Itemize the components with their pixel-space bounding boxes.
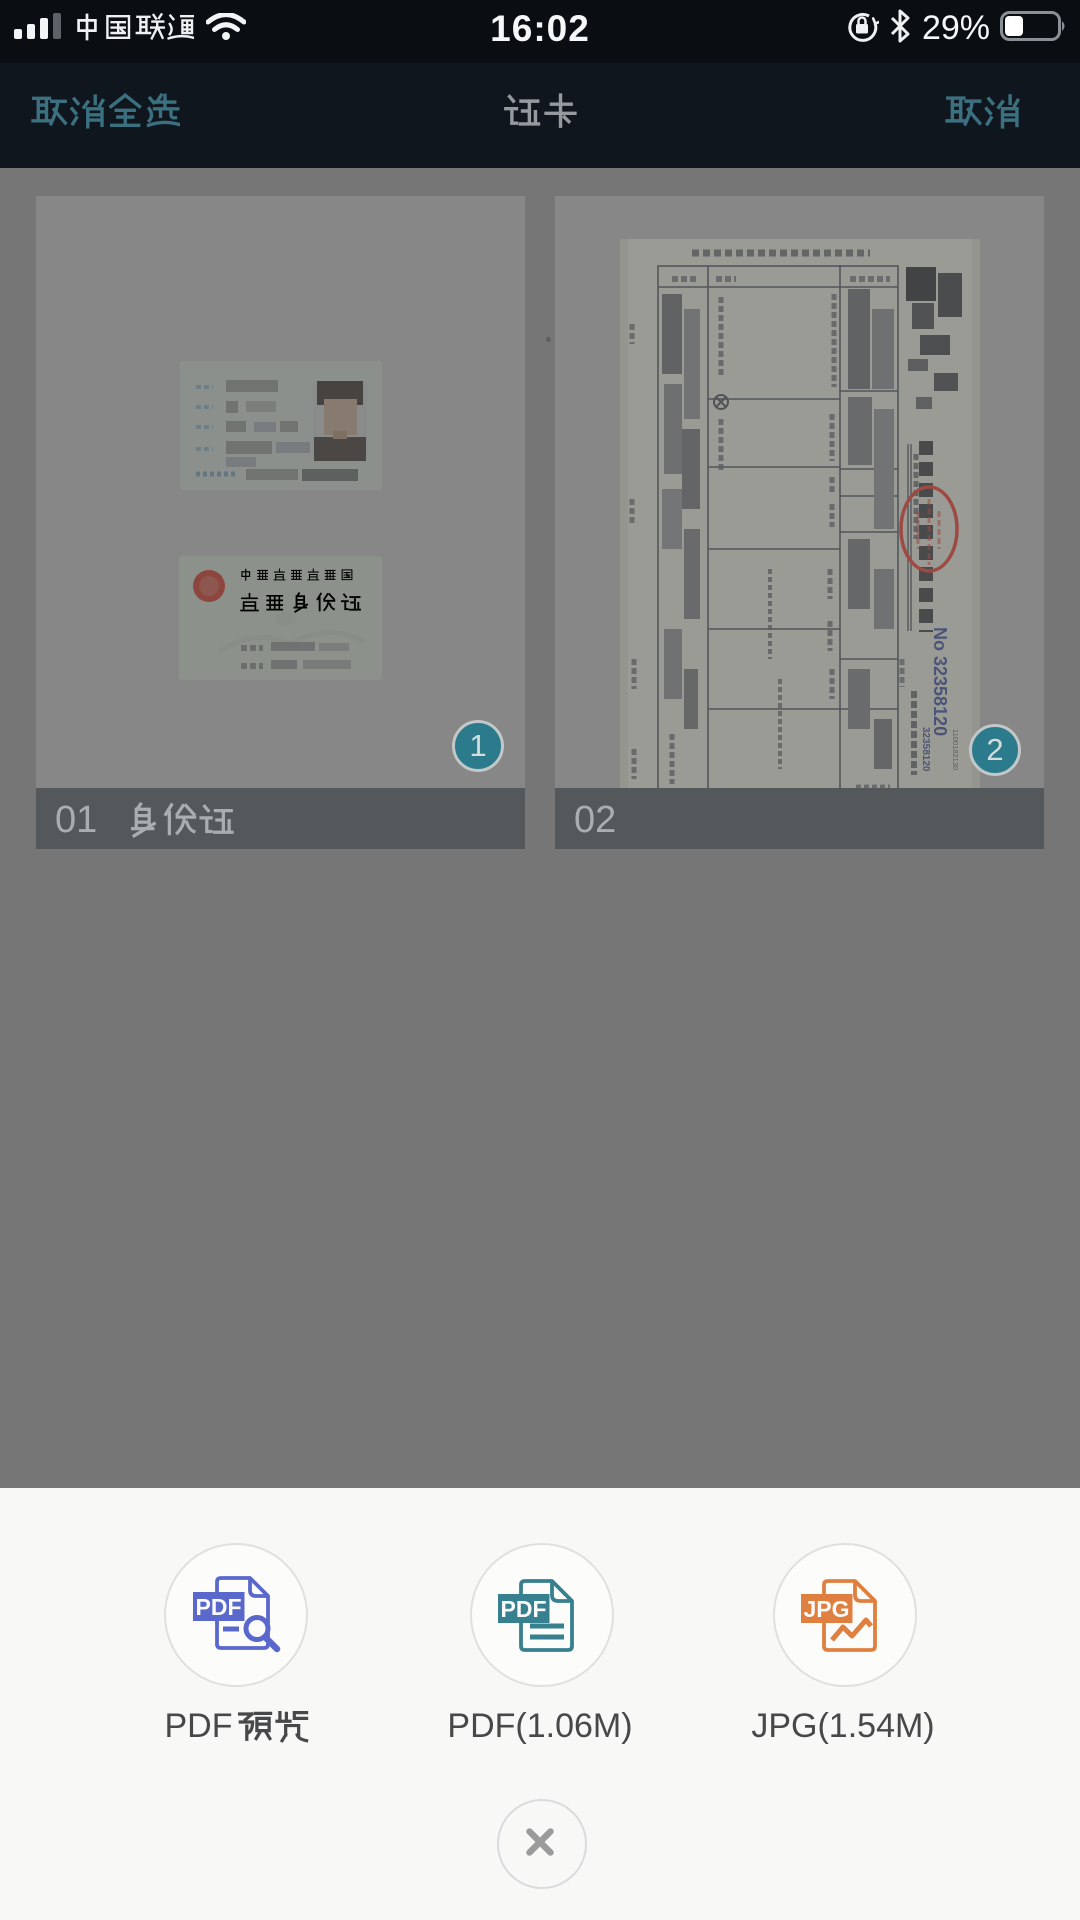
svg-text:PDF: PDF bbox=[196, 1594, 242, 1620]
svg-text:1100182130: 1100182130 bbox=[951, 729, 960, 770]
svg-text:32358120: 32358120 bbox=[920, 727, 931, 772]
svg-text:No 32358120: No 32358120 bbox=[930, 627, 950, 736]
svg-text:PDF: PDF bbox=[501, 1596, 547, 1622]
svg-text:JPG: JPG bbox=[803, 1596, 849, 1622]
